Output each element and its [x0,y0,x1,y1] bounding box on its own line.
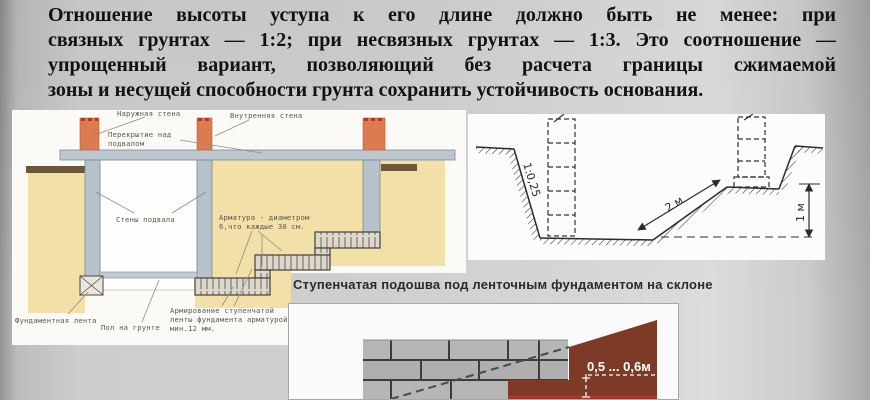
trench-profile [476,146,823,246]
label-reinforcement-1: Армирование ступенчатой [170,306,274,315]
step-diagram-panel: 0,5 ... 0,6м [288,303,679,400]
basement-interior [100,160,197,290]
trench-diagram: 2 м 1 м 1:0,25 [468,114,825,260]
label-outer-wall: Наружная стена [117,110,180,118]
label-1m: 1 м [794,203,807,222]
label-2m: 2 м [663,194,686,215]
label-ceiling-1: Перекрытие над [108,130,171,139]
label-ground-floor: Пол на грунте [101,323,160,332]
label-basement-walls: Стены подвала [116,215,175,224]
ground-floor-slab [100,272,197,278]
pier-left-dashed [548,114,575,236]
intro-line-1: Отношение высоты уступа к его длине долж… [48,3,836,28]
label-reinforcement-2: ленты фундамента арматурой [170,315,288,324]
brick-stub-outer [80,118,99,150]
trench-diagram-panel: 2 м 1 м 1:0,25 [468,114,825,260]
strip-footing-block [80,276,103,295]
brick-stub-inner [197,118,212,150]
label-inner-wall: Внутренняя стена [230,111,302,120]
slide: Отношение высоты уступа к его длине долж… [0,0,870,400]
basement-wall-right [363,160,380,235]
label-step-dimension: 0,5 ... 0,6м [587,359,651,374]
brick-stub-right [363,118,385,150]
ceiling-slab [60,150,455,160]
soil-left [26,166,85,313]
label-rebar-1: Арматура - диаметром [219,213,310,222]
label-rebar-2: 6,что каждые 30 см. [219,222,305,231]
intro-line-4: зоны и несущей способности грунта сохран… [48,78,836,103]
label-strip-footing: Фундаментная лента [15,316,97,325]
basement-wall-middle [197,160,212,290]
pier-right-dashed [734,114,769,187]
intro-paragraph: Отношение высоты уступа к его длине долж… [48,3,836,103]
step-footing-diagram: 0,5 ... 0,6м [289,304,678,399]
intro-line-3: упрощенный вариант, позволяющий без расч… [48,53,836,78]
basement-wall-left [85,160,100,290]
step-diagram-title: Ступенчатая подошва под ленточным фундам… [293,277,713,292]
label-ceiling-2: подвалом [108,139,145,148]
label-reinforcement-3: мин.12 мм. [170,324,215,333]
intro-line-2: связных грунтах — 1:2; при несвязных гру… [48,28,836,53]
